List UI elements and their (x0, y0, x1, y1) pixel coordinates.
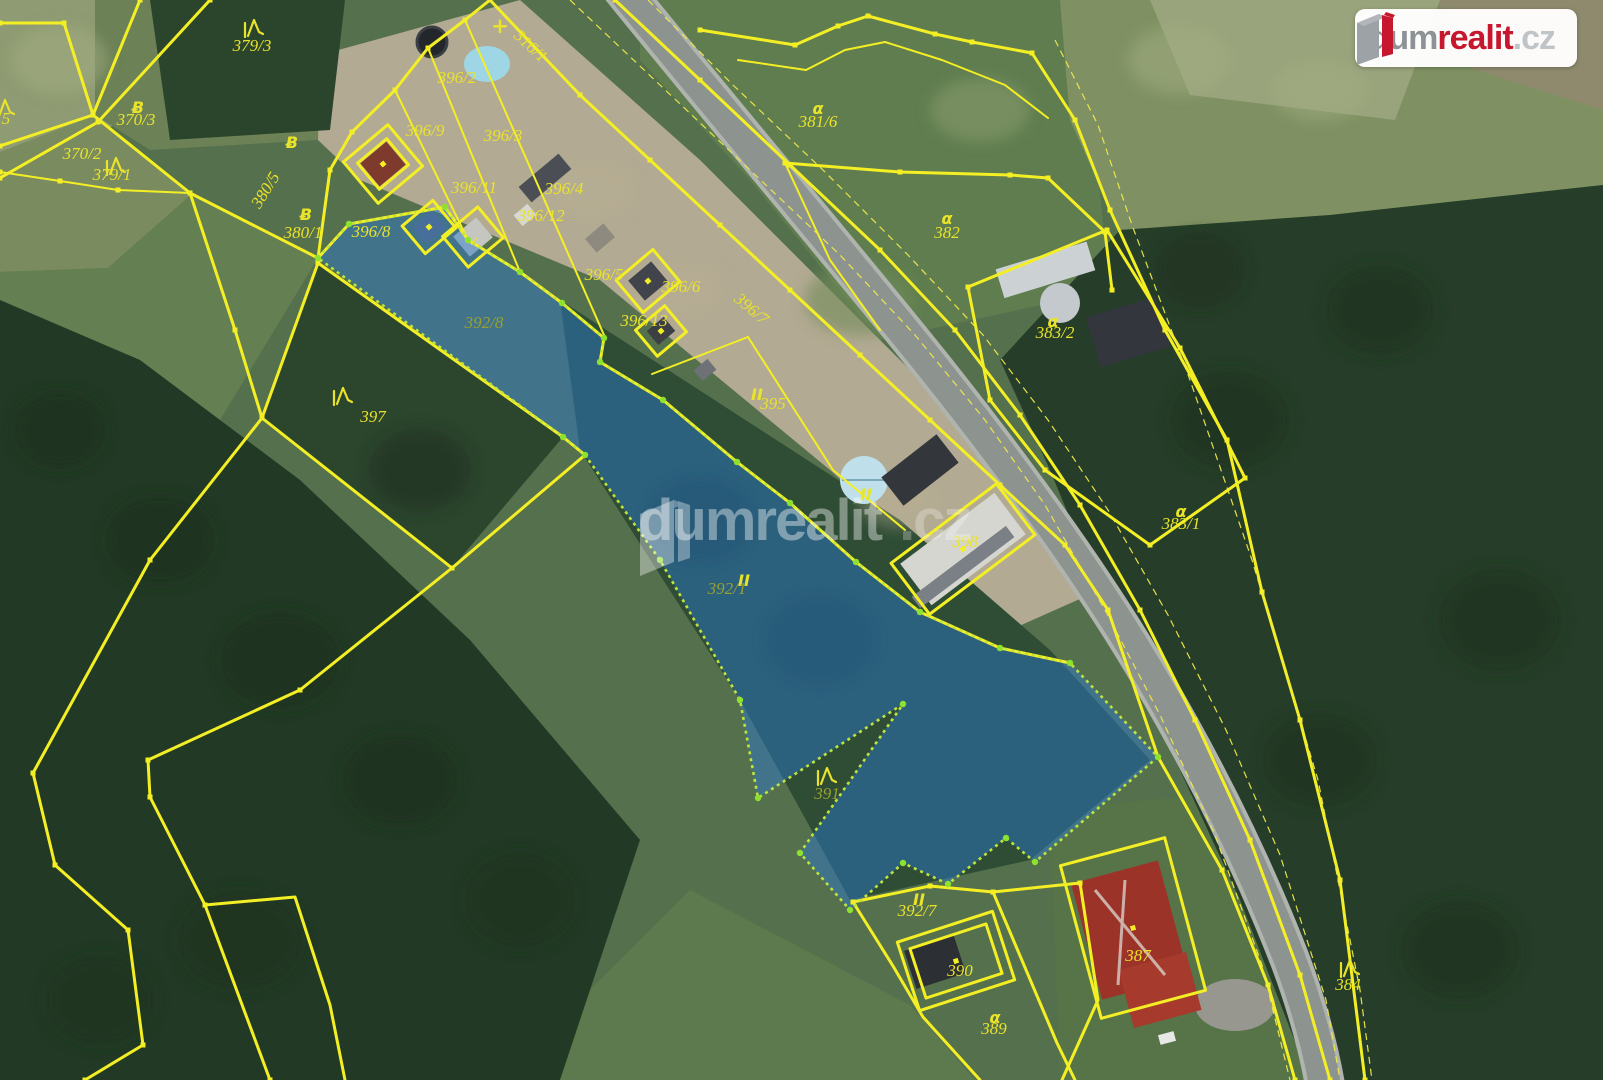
boundary-vertex-dot (788, 288, 793, 293)
boundary-vertex-dot (0, 21, 3, 26)
highlight-vertex-dot (560, 434, 566, 440)
boundary-vertex-dot (350, 130, 355, 135)
highlight-vertex-dot (755, 795, 761, 801)
parcel-label-392-7: 392/7 (897, 901, 938, 920)
boundary-vertex-dot (1193, 718, 1198, 723)
check-symbol: ✓ (469, 235, 480, 250)
boundary-vertex-dot (298, 688, 303, 693)
highlight-vertex-dot (917, 609, 923, 615)
parcel-label-379-3: 379/3 (232, 36, 272, 55)
boundary-vertex-dot (866, 14, 871, 19)
boundary-vertex-dot (1063, 543, 1068, 548)
boundary-vertex-dot (1220, 868, 1225, 873)
parcel-label-370-2: 370/2 (62, 144, 102, 163)
parcel-label-396-12: 396/12 (516, 206, 565, 225)
parcel-label-381-6: 381/6 (798, 112, 838, 131)
boundary-vertex-dot (148, 558, 153, 563)
ii-symbol: II (860, 485, 872, 504)
highlight-vertex-dot (734, 459, 740, 465)
boundary-vertex-dot (1298, 973, 1303, 978)
boundary-vertex-dot (898, 170, 903, 175)
boundary-vertex-dot (488, 0, 493, 3)
cadastral-map-view[interactable]: αααααɃɃɃIIIIIIII+✓ 379/3370/3370/2379/15… (0, 0, 1603, 1080)
parcel-label-396-5: 396/5 (584, 265, 624, 284)
boundary-vertex-dot (613, 0, 618, 3)
boundary-vertex-dot (718, 223, 723, 228)
boundary-vertex-dot (126, 928, 131, 933)
highlight-vertex-dot (660, 397, 666, 403)
parcel-label-382: 382 (933, 223, 960, 242)
boundary-vertex-dot (0, 170, 3, 175)
boundary-vertex-dot (91, 113, 96, 118)
highlight-vertex-dot (1003, 835, 1009, 841)
boundary-vertex-dot (31, 771, 36, 776)
parcel-label-398: 398 (951, 532, 978, 551)
highlight-vertex-dot (597, 359, 603, 365)
boundary-vertex-dot (928, 418, 933, 423)
parcel-label-397: 397 (359, 407, 387, 426)
boundary-vertex-dot (328, 168, 333, 173)
boundary-vertex-dot (698, 28, 703, 33)
parcel-label-383-2: 383/2 (1035, 323, 1075, 342)
boundary-vertex-dot (953, 328, 958, 333)
highlight-vertex-dot (315, 255, 321, 261)
boundary-vertex-dot (0, 144, 3, 149)
highlight-vertex-dot (601, 335, 607, 341)
boundary-vertex-dot (578, 93, 583, 98)
boundary-vertex-dot (0, 176, 3, 181)
parcel-label-389: 389 (980, 1019, 1007, 1038)
dumrealit-logo-icon (1355, 9, 1401, 65)
boundary-vertex-dot (928, 884, 933, 889)
parcel-label-383-1: 383/1 (1161, 514, 1201, 533)
boundary-vertex-dot (1105, 228, 1110, 233)
boundary-vertex-dot (1110, 288, 1115, 293)
boundary-vertex-dot (138, 0, 143, 3)
highlight-vertex-dot (797, 850, 803, 856)
parcel-label-396-9: 396/9 (405, 121, 445, 140)
parcel-label-390: 390 (946, 961, 973, 980)
parcel-label-379-1: 379/1 (92, 165, 132, 184)
boundary-vertex-dot (1073, 118, 1078, 123)
boundary-vertex-dot (316, 261, 321, 266)
highlight-vertex-dot (582, 452, 588, 458)
boundary-vertex-dot (208, 0, 213, 3)
boundary-vertex-dot (970, 40, 975, 45)
boundary-vertex-dot (933, 32, 938, 37)
boundary-vertex-dot (62, 21, 67, 26)
parcel-label-396-3: 396/3 (483, 126, 523, 145)
parcel-label-370-3: 370/3 (116, 110, 156, 129)
parcel-label-391: 391 (813, 784, 840, 803)
boundary-vertex-dot (146, 758, 151, 763)
boundary-vertex-dot (260, 416, 265, 421)
plus-symbol: + (491, 14, 509, 38)
highlight-vertex-dot (900, 860, 906, 866)
parcel-label-387: 387 (1124, 946, 1152, 965)
parcel-label-396-2: 396/2 (437, 68, 477, 87)
highlight-vertex-dot (945, 881, 951, 887)
boundary-vertex-dot (116, 188, 121, 193)
highlight-vertex-dot (900, 701, 906, 707)
boundary-vertex-dot (793, 43, 798, 48)
boundary-vertex-dot (1018, 413, 1023, 418)
boundary-vertex-dot (58, 179, 63, 184)
parcel-label-396-13: 396/13 (619, 311, 667, 330)
boundary-vertex-dot (53, 863, 58, 868)
parcel-label-396-6: 396/6 (661, 277, 701, 296)
boundary-vertex-dot (966, 285, 971, 290)
boundary-vertex-dot (148, 795, 153, 800)
logo-text-realit: realit (1437, 19, 1512, 57)
boundary-vertex-dot (878, 248, 883, 253)
parcel-label-392-1: 392/1 (707, 579, 747, 598)
highlight-vertex-dot (787, 500, 793, 506)
parcel-label-395: 395 (759, 394, 786, 413)
boundary-vertex-dot (188, 191, 193, 196)
highlight-vertex-dot (517, 269, 523, 275)
highlight-vertex-dot (559, 300, 565, 306)
highlight-vertex-dot (847, 907, 853, 913)
boundary-vertex-dot (1008, 173, 1013, 178)
boundary-vertex-dot (1243, 476, 1248, 481)
highlight-vertex-dot (737, 697, 743, 703)
boundary-vertex-dot (836, 24, 841, 29)
boundary-vertex-dot (1043, 468, 1048, 473)
parcel-label-380-1: 380/1 (283, 223, 323, 242)
boundary-vertex-dot (1148, 543, 1153, 548)
driveway (1195, 979, 1275, 1031)
highlight-vertex-dot (1032, 859, 1038, 865)
boundary-vertex-dot (450, 566, 455, 571)
boundary-vertex-dot (141, 1043, 146, 1048)
boundary-vertex-dot (1030, 51, 1035, 56)
boundary-vertex-dot (648, 158, 653, 163)
parcel-label-396-11: 396/11 (450, 178, 497, 197)
dumrealit-logo[interactable]: dumrealit.cz (1355, 9, 1577, 67)
parcel-label-396-4: 396/4 (544, 179, 584, 198)
highlight-vertex-dot (657, 557, 663, 563)
boundary-vertex-dot (1138, 608, 1143, 613)
highlight-vertex-dot (1155, 754, 1161, 760)
parcel-label-396-8: 396/8 (351, 222, 391, 241)
boundary-vertex-dot (1163, 328, 1168, 333)
boundary-vertex-dot (1108, 208, 1113, 213)
b-symbol: Ƀ (285, 133, 298, 152)
boundary-vertex-dot (1078, 503, 1083, 508)
boundary-vertex-dot (1266, 983, 1271, 988)
map-canvas: αααααɃɃɃIIIIIIII+✓ 379/3370/3370/2379/15… (0, 0, 1603, 1080)
highlight-vertex-dot (442, 204, 448, 210)
parcel-label-384: 384 (1334, 975, 1361, 994)
logo-text-tld: .cz (1513, 19, 1555, 57)
boundary-vertex-dot (1225, 438, 1230, 443)
boundary-vertex-dot (1248, 838, 1253, 843)
boundary-vertex-dot (1046, 176, 1051, 181)
boundary-vertex-dot (988, 398, 993, 403)
highlight-vertex-dot (853, 559, 859, 565)
parcel-label-392-8: 392/8 (464, 313, 504, 332)
highlight-vertex-dot (997, 645, 1003, 651)
boundary-vertex-dot (1178, 346, 1183, 351)
boundary-vertex-dot (233, 328, 238, 333)
boundary-vertex-dot (698, 78, 703, 83)
b-symbol: Ƀ (299, 205, 312, 224)
parcel-label-edge-partial-5: 5 (2, 109, 11, 128)
boundary-vertex-dot (858, 353, 863, 358)
highlight-vertex-dot (1067, 660, 1073, 666)
